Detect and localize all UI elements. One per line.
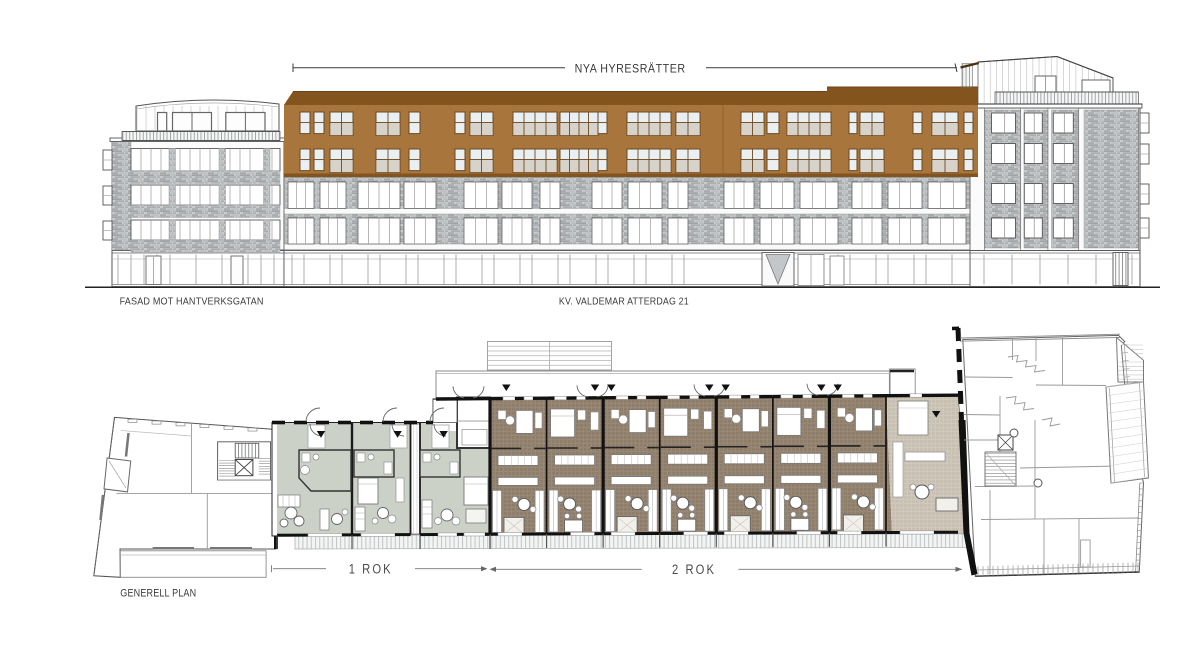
svg-text:FASAD MOT HANTVERKSGATAN: FASAD MOT HANTVERKSGATAN [120, 296, 264, 308]
svg-text:NYA HYRESRÄTTER: NYA HYRESRÄTTER [575, 62, 686, 76]
svg-text:GENERELL PLAN: GENERELL PLAN [120, 588, 196, 600]
svg-text:KV. VALDEMAR ATTERDAG 21: KV. VALDEMAR ATTERDAG 21 [559, 296, 689, 308]
svg-text:2 ROK: 2 ROK [672, 562, 716, 577]
svg-text:1 ROK: 1 ROK [349, 562, 393, 577]
